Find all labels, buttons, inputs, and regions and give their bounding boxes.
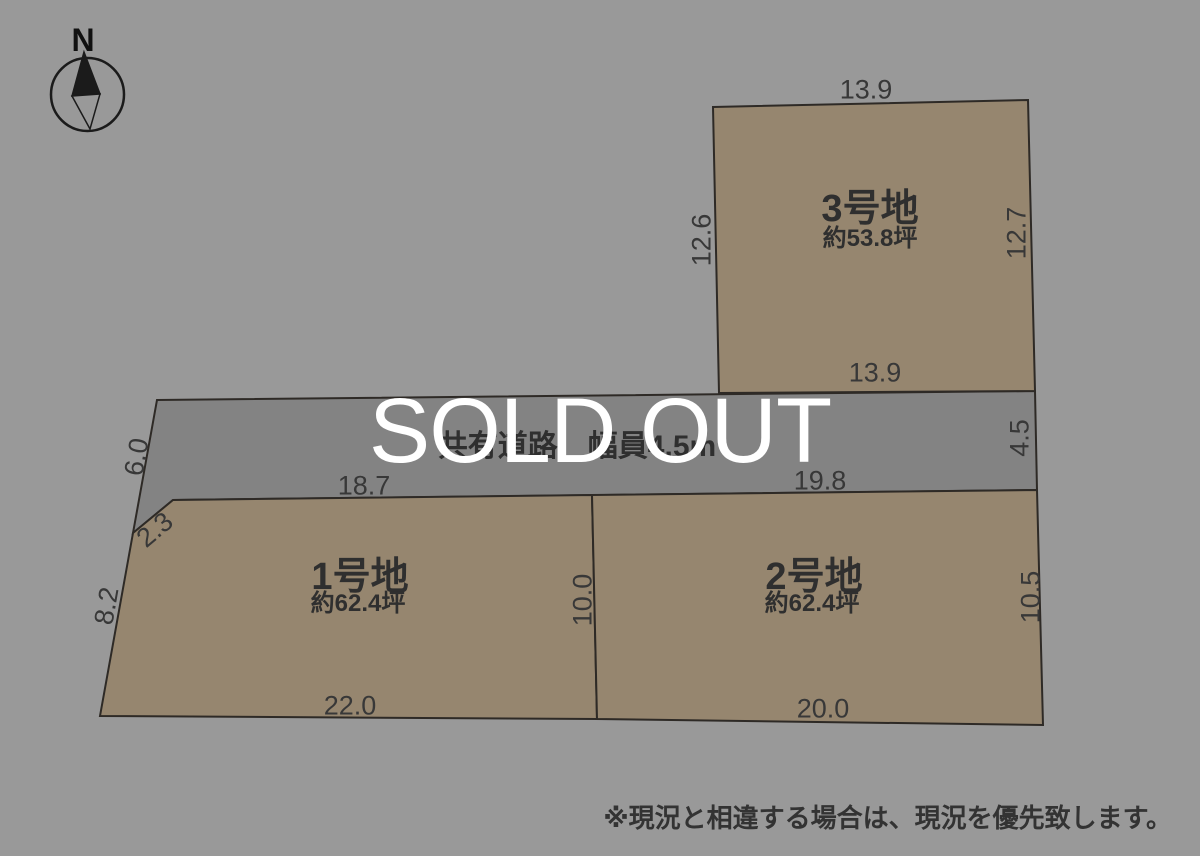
plot-3-area: 約53.8坪 <box>823 227 918 251</box>
plot-3-dim-top: 13.9 <box>840 77 893 104</box>
sold-out-overlay: SOLD OUT <box>369 385 831 477</box>
land-plot-diagram: N 13.9 12.6 12.7 13.9 3号地 約53.8坪 共有道路 幅員… <box>0 0 1200 856</box>
plot-3-dim-left: 12.6 <box>689 214 716 267</box>
plot-1-area: 約62.4坪 <box>311 592 406 616</box>
plot-3-name: 3号地 <box>821 190 918 228</box>
plot-3-dim-bottom: 13.9 <box>849 360 902 387</box>
plot-2-dim-bottom: 20.0 <box>797 696 850 723</box>
plot-2-dim-right: 10.5 <box>1018 571 1045 624</box>
compass-icon <box>51 52 124 131</box>
disclaimer-text: ※現況と相違する場合は、現況を優先致します。 <box>603 805 1172 831</box>
compass-north-label: N <box>71 24 94 56</box>
plot-1-dim-bottom: 22.0 <box>324 693 377 720</box>
plot-1-dim-left: 8.2 <box>90 585 123 627</box>
plot-3-dim-right: 12.7 <box>1004 207 1031 260</box>
plot-2-area: 約62.4坪 <box>765 592 860 616</box>
road-dim-left: 6.0 <box>120 436 153 478</box>
plot-1-dim-right: 10.0 <box>570 574 597 627</box>
road-dim-right: 4.5 <box>1007 419 1034 457</box>
